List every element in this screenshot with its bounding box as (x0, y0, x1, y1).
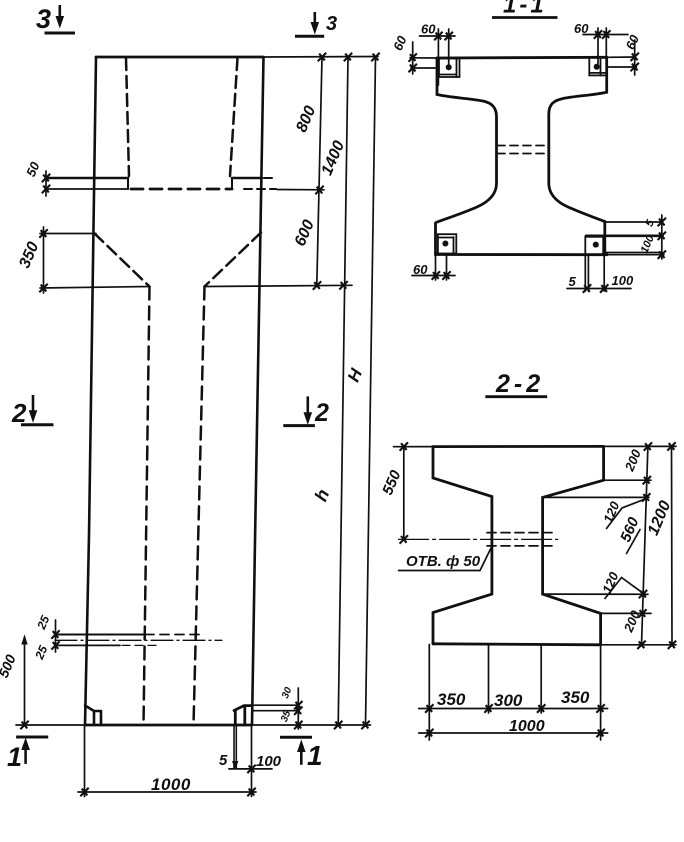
svg-text:350: 350 (561, 688, 590, 707)
svg-text:120: 120 (599, 569, 622, 596)
svg-text:100: 100 (256, 753, 282, 770)
svg-text:H: H (344, 365, 367, 384)
svg-text:200: 200 (621, 447, 644, 474)
svg-text:100: 100 (612, 273, 634, 288)
svg-text:60: 60 (390, 33, 410, 53)
svg-text:2: 2 (11, 398, 27, 428)
svg-text:500: 500 (0, 652, 19, 680)
svg-text:1-1: 1-1 (503, 0, 547, 19)
svg-text:2: 2 (314, 399, 329, 427)
svg-text:350: 350 (16, 240, 42, 271)
svg-text:600: 600 (292, 218, 318, 249)
svg-text:1000: 1000 (509, 718, 545, 735)
svg-text:60: 60 (421, 22, 436, 37)
svg-text:ОТВ. ф 50: ОТВ. ф 50 (406, 553, 481, 570)
svg-text:560: 560 (617, 514, 643, 544)
svg-text:1: 1 (7, 742, 22, 772)
svg-text:30: 30 (280, 685, 295, 700)
svg-text:5: 5 (569, 274, 577, 289)
svg-text:3: 3 (326, 13, 337, 35)
svg-text:60: 60 (574, 21, 589, 36)
svg-text:800: 800 (293, 104, 319, 135)
svg-text:120: 120 (600, 499, 623, 526)
svg-text:2-2: 2-2 (495, 370, 544, 398)
svg-text:3: 3 (36, 4, 51, 34)
svg-text:h: h (311, 486, 334, 504)
svg-text:300: 300 (494, 691, 523, 710)
svg-text:5: 5 (219, 752, 228, 769)
svg-text:550: 550 (379, 467, 405, 497)
svg-text:1000: 1000 (151, 775, 191, 794)
svg-text:5: 5 (644, 217, 658, 228)
svg-text:25: 25 (32, 643, 51, 662)
svg-text:1: 1 (307, 740, 323, 771)
svg-text:25: 25 (34, 613, 53, 632)
svg-text:1400: 1400 (319, 138, 349, 178)
svg-text:50: 50 (23, 159, 43, 179)
svg-text:1200: 1200 (645, 498, 675, 538)
svg-text:60: 60 (413, 262, 428, 277)
svg-text:350: 350 (437, 690, 466, 709)
